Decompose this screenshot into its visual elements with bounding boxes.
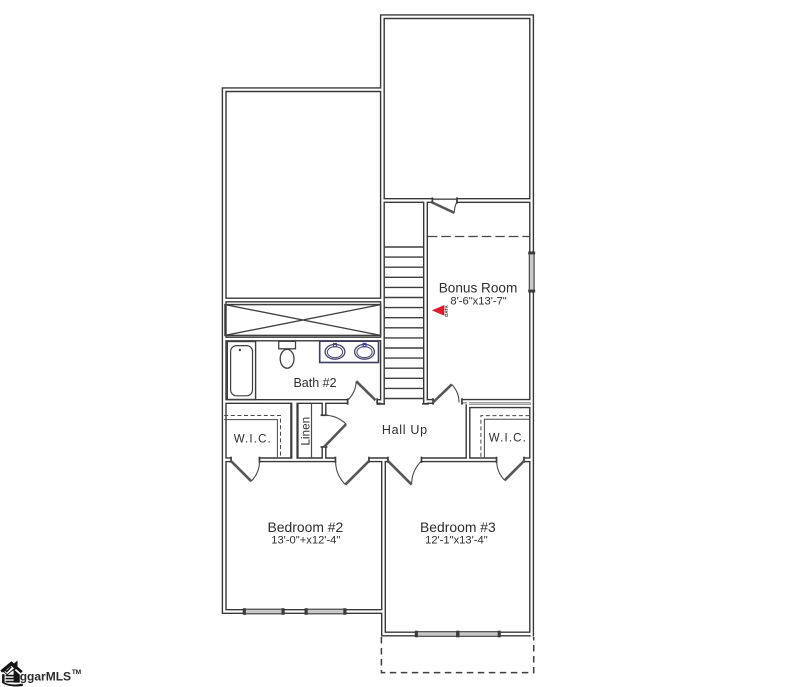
svg-text:W.I.C.: W.I.C.	[234, 433, 272, 445]
svg-text:Bath #2: Bath #2	[293, 376, 336, 390]
svg-text:Bonus Room: Bonus Room	[439, 281, 518, 296]
svg-text:Bedroom #2: Bedroom #2	[268, 519, 344, 535]
svg-text:Bedroom #3: Bedroom #3	[420, 519, 496, 535]
svg-text:W.I.C.: W.I.C.	[489, 433, 527, 445]
svg-text:TM: TM	[72, 669, 82, 676]
svg-text:Linen: Linen	[298, 417, 312, 446]
svg-text:Hall Up: Hall Up	[382, 423, 428, 437]
svg-text:DATA: DATA	[444, 304, 449, 316]
svg-text:13'-0"+x12'-4": 13'-0"+x12'-4"	[271, 535, 340, 547]
svg-text:12'-1"x13'-4": 12'-1"x13'-4"	[425, 535, 488, 547]
svg-text:ggarMLS: ggarMLS	[20, 670, 71, 684]
svg-text:8'-6"x13'-7": 8'-6"x13'-7"	[450, 296, 506, 308]
